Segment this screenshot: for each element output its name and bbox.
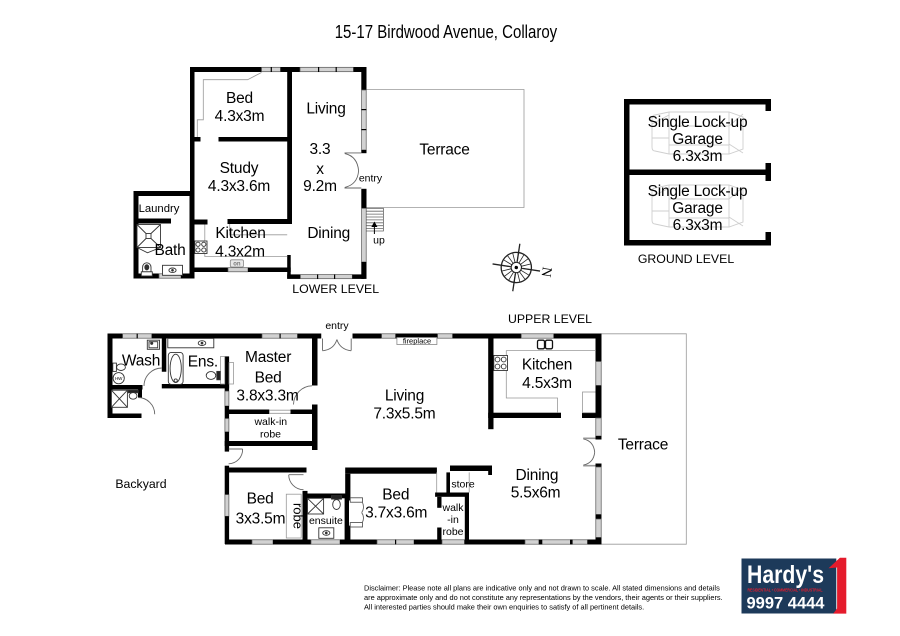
svg-text:Laundry: Laundry xyxy=(139,203,180,215)
svg-text:walk: walk xyxy=(441,502,464,514)
svg-text:7.3x5.5m: 7.3x5.5m xyxy=(373,406,435,423)
svg-text:4.5x3m: 4.5x3m xyxy=(522,375,572,392)
svg-text:Garage: Garage xyxy=(672,131,723,148)
svg-text:Bed: Bed xyxy=(255,370,282,387)
svg-text:store: store xyxy=(451,479,475,491)
svg-text:Bed: Bed xyxy=(382,487,409,504)
svg-text:x: x xyxy=(316,161,324,178)
svg-text:3.8x3.3m: 3.8x3.3m xyxy=(236,387,298,404)
svg-text:RESIDENTIAL • COMMERCIAL • IND: RESIDENTIAL • COMMERCIAL • INDUSTRIAL xyxy=(748,588,823,593)
svg-text:up: up xyxy=(373,235,385,247)
svg-text:on: on xyxy=(233,262,241,268)
svg-text:3.7x3.6m: 3.7x3.6m xyxy=(365,505,427,522)
svg-text:Bath: Bath xyxy=(154,242,185,259)
svg-text:4.3x3m: 4.3x3m xyxy=(215,108,265,125)
svg-text:3.3: 3.3 xyxy=(310,141,331,158)
svg-text:Single Lock-up: Single Lock-up xyxy=(648,114,748,131)
svg-text:Garage: Garage xyxy=(672,200,723,217)
svg-text:15-17 Birdwood Avenue, Collaro: 15-17 Birdwood Avenue, Collaroy xyxy=(335,22,558,42)
svg-text:Living: Living xyxy=(306,101,345,118)
svg-text:Study: Study xyxy=(220,160,259,177)
svg-text:4.3x2m: 4.3x2m xyxy=(215,244,265,261)
svg-text:GROUND LEVEL: GROUND LEVEL xyxy=(638,252,735,266)
svg-text:-in: -in xyxy=(447,514,459,526)
svg-text:Bed: Bed xyxy=(247,490,274,507)
svg-text:ensuite: ensuite xyxy=(309,515,343,527)
svg-text:LOWER LEVEL: LOWER LEVEL xyxy=(292,282,379,296)
svg-text:fireplace: fireplace xyxy=(403,337,431,346)
svg-text:6.3x3m: 6.3x3m xyxy=(673,148,723,165)
svg-text:Disclaimer: Please note all pl: Disclaimer: Please note all plans are in… xyxy=(364,584,720,593)
svg-text:Backyard: Backyard xyxy=(115,477,166,491)
svg-text:3x3.5m: 3x3.5m xyxy=(236,510,286,527)
svg-text:entry: entry xyxy=(325,320,349,332)
svg-text:4.3x3.6m: 4.3x3.6m xyxy=(208,178,270,195)
svg-text:Dining: Dining xyxy=(307,225,350,242)
svg-text:Dining: Dining xyxy=(516,467,559,484)
svg-text:Ens.: Ens. xyxy=(188,353,218,370)
svg-text:All interested parties should: All interested parties should make their… xyxy=(364,603,644,612)
svg-text:Master: Master xyxy=(245,349,291,366)
svg-text:5.5x6m: 5.5x6m xyxy=(511,485,561,502)
svg-text:9997 4444: 9997 4444 xyxy=(747,594,826,613)
svg-text:UPPER LEVEL: UPPER LEVEL xyxy=(508,312,592,326)
svg-text:Kitchen: Kitchen xyxy=(215,225,265,242)
svg-text:Terrace: Terrace xyxy=(618,437,668,454)
svg-text:Hardy's: Hardy's xyxy=(747,561,824,589)
svg-text:robe: robe xyxy=(260,429,281,441)
svg-text:HW: HW xyxy=(115,376,123,381)
svg-text:Wash: Wash xyxy=(122,353,160,370)
svg-text:Single Lock-up: Single Lock-up xyxy=(648,183,748,200)
svg-text:are approximate only and do no: are approximate only and do not constitu… xyxy=(364,593,723,602)
svg-text:robe: robe xyxy=(442,526,463,538)
svg-text:entry: entry xyxy=(359,173,383,185)
svg-text:6.3x3m: 6.3x3m xyxy=(673,217,723,234)
svg-text:Bed: Bed xyxy=(226,90,253,107)
svg-text:Terrace: Terrace xyxy=(419,142,469,159)
svg-text:Living: Living xyxy=(385,387,424,404)
svg-text:walk-in: walk-in xyxy=(253,416,287,428)
svg-text:Kitchen: Kitchen xyxy=(522,357,572,374)
svg-text:9.2m: 9.2m xyxy=(303,178,337,195)
